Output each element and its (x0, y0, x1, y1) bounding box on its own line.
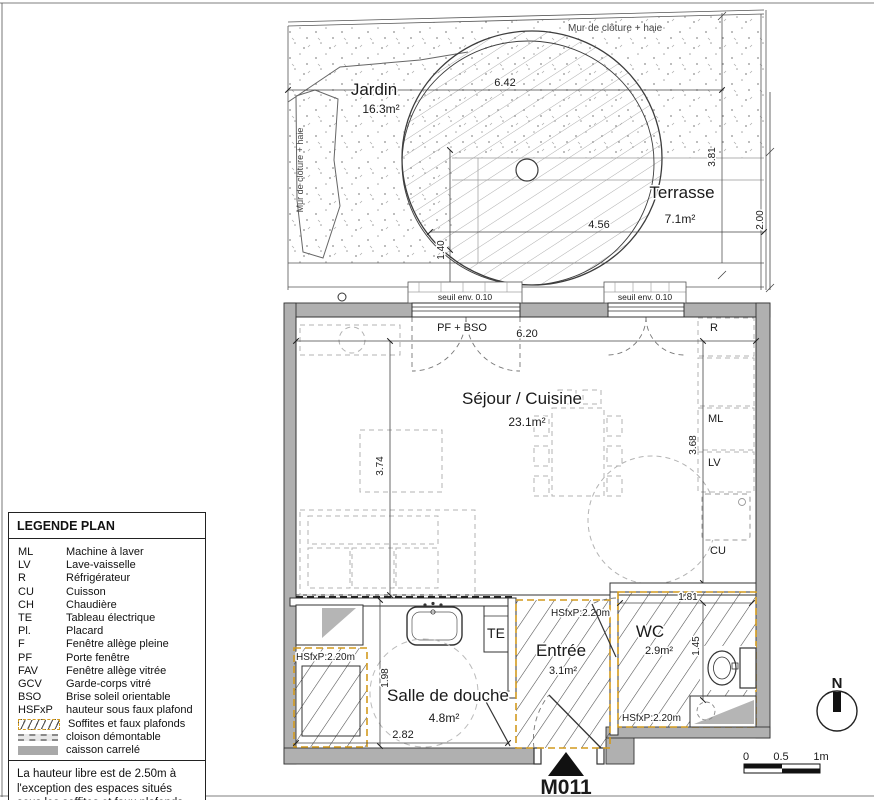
dim-wc-width: 1.81 (678, 592, 698, 603)
salle-de-douche: HSfxP:2.20m TE 1.98 2.82 Salle de douche… (294, 600, 510, 747)
dim-jardin-width: 6.42 (494, 77, 515, 89)
hsfxp-douche-label: HSfxP:2.20m (296, 652, 355, 663)
sejour-cuisine: R ML LV CU 6.20 3.74 3.68 Séjour / Cuisi… (296, 317, 756, 595)
legend-row: CHChaudière (9, 599, 205, 612)
plan-note: La hauteur libre est de 2.50m à l'except… (9, 760, 205, 800)
windows: seuil env. 0.10 seuil env. 0.10 PF + BSO (408, 282, 686, 371)
scale-zero: 0 (743, 751, 749, 763)
door-post-right (597, 748, 604, 764)
douche-name: Salle de douche (387, 686, 509, 705)
garden-area: 6.42 4.56 1.40 3.81 2.00 Mur de clôture … (288, 10, 774, 301)
legend-row: FAVFenêtre allège vitrée (9, 665, 205, 678)
legend-swatch-row: caisson carrelé (9, 744, 205, 757)
scale-one: 1m (813, 751, 828, 763)
caisson-swatch-icon (18, 746, 58, 755)
dim-douche-height: 1.98 (380, 668, 391, 688)
sejour-dimensions: 6.20 3.74 3.68 (296, 328, 756, 595)
scale-half: 0.5 (773, 751, 788, 763)
legend-row: Pl.Placard (9, 625, 205, 638)
cloison-swatch-icon (18, 734, 58, 741)
entree-name: Entrée (536, 641, 586, 660)
legend-row: MLMachine à laver (9, 546, 205, 559)
pf-bso-label: PF + BSO (437, 322, 487, 334)
sejour-name: Séjour / Cuisine (462, 389, 582, 408)
legend-row: PFPorte fenêtre (9, 652, 205, 665)
dim-sejour-width: 6.20 (516, 328, 537, 340)
fence-label-top: Mur de clôture + haie (568, 23, 663, 34)
entree: HSfxP:2.20m Entrée 3.1m² (516, 600, 610, 748)
dim-terrasse-height: 3.81 (707, 147, 718, 167)
legend-row: RRéfrigérateur (9, 572, 205, 585)
te-label: TE (487, 625, 505, 641)
dim-sejour-right: 3.68 (688, 435, 699, 455)
dim-terrasse-depth: 2.00 (755, 210, 766, 230)
entrance-arrow (548, 752, 584, 776)
douche-closet (296, 605, 363, 645)
window-right: seuil env. 0.10 (604, 282, 686, 355)
garden-well (516, 159, 538, 181)
hsfxp-wc-label: HSfxP:2.20m (622, 713, 681, 724)
door-post-left (534, 748, 541, 764)
label-machine-a-laver: ML (708, 413, 723, 425)
legend-row: FFenêtre allège pleine (9, 638, 205, 651)
legend-row: CUCuisson (9, 586, 205, 599)
label-cuisson: CU (710, 545, 726, 557)
douche-soffite-box: HSfxP:2.20m (294, 648, 367, 747)
seuil-label-right: seuil env. 0.10 (618, 292, 672, 302)
soffites-swatch-icon (18, 719, 60, 730)
legend-swatch-row: cloison démontable (9, 731, 205, 744)
wc-area: 2.9m² (645, 645, 673, 657)
legend-swatch-row: Soffites et faux plafonds (9, 718, 205, 731)
floor-plan-sheet: 6.42 4.56 1.40 3.81 2.00 Mur de clôture … (0, 0, 874, 800)
douche-area: 4.8m² (429, 711, 460, 725)
legend-row: GCVGarde-corps vitré (9, 678, 205, 691)
te-closet: TE (484, 606, 508, 652)
entree-area: 3.1m² (549, 665, 577, 677)
legend-row: HSFxPhauteur sous faux plafond (9, 704, 205, 717)
toilet (700, 646, 756, 690)
jardin-name: Jardin (351, 80, 397, 99)
sejour-area: 23.1m² (508, 415, 545, 429)
wc-caisson (690, 696, 756, 727)
seuil-label-left: seuil env. 0.10 (438, 292, 492, 302)
plan-title: M011 (540, 776, 592, 799)
legend-row: LVLave-vaisselle (9, 559, 205, 572)
hsfxp-entree-label: HSfxP:2.20m (551, 608, 610, 619)
wc-name: WC (636, 622, 664, 641)
dim-step-width: 1.40 (436, 240, 447, 260)
terrasse-name: Terrasse (649, 183, 714, 202)
fence-label-left: Mur de clôture + haie (295, 128, 305, 213)
dim-terrasse-width: 4.56 (588, 219, 609, 231)
entrance-marker: M011 (540, 752, 592, 799)
scale-bar: 0 0.5 1m (743, 751, 829, 773)
jardin-area: 16.3m² (362, 102, 399, 116)
dim-wc-height: 1.45 (691, 636, 702, 656)
cooktop (702, 494, 750, 540)
legend-panel: LEGENDE PLAN MLMachine à laver LVLave-va… (8, 512, 206, 800)
garden-post (338, 293, 346, 301)
rug-circle (588, 456, 716, 584)
label-lave-vaisselle: LV (708, 457, 721, 469)
north-arrow: N (817, 675, 857, 731)
legend-row: TETableau électrique (9, 612, 205, 625)
terrasse-area: 7.1m² (665, 212, 696, 226)
legend-title: LEGENDE PLAN (9, 513, 205, 539)
north-label: N (832, 675, 843, 692)
legend-rows: MLMachine à laver LVLave-vaisselle RRéfr… (9, 539, 205, 760)
kitchen-counter (300, 430, 475, 595)
label-refrigerateur: R (710, 322, 718, 334)
legend-row: BSOBrise soleil orientable (9, 691, 205, 704)
washbasin (407, 602, 462, 645)
dim-sejour-left: 3.74 (375, 456, 386, 476)
dim-douche-width: 2.82 (392, 729, 413, 741)
north-needle (833, 692, 841, 712)
appliance-column: R ML LV CU (698, 318, 754, 557)
